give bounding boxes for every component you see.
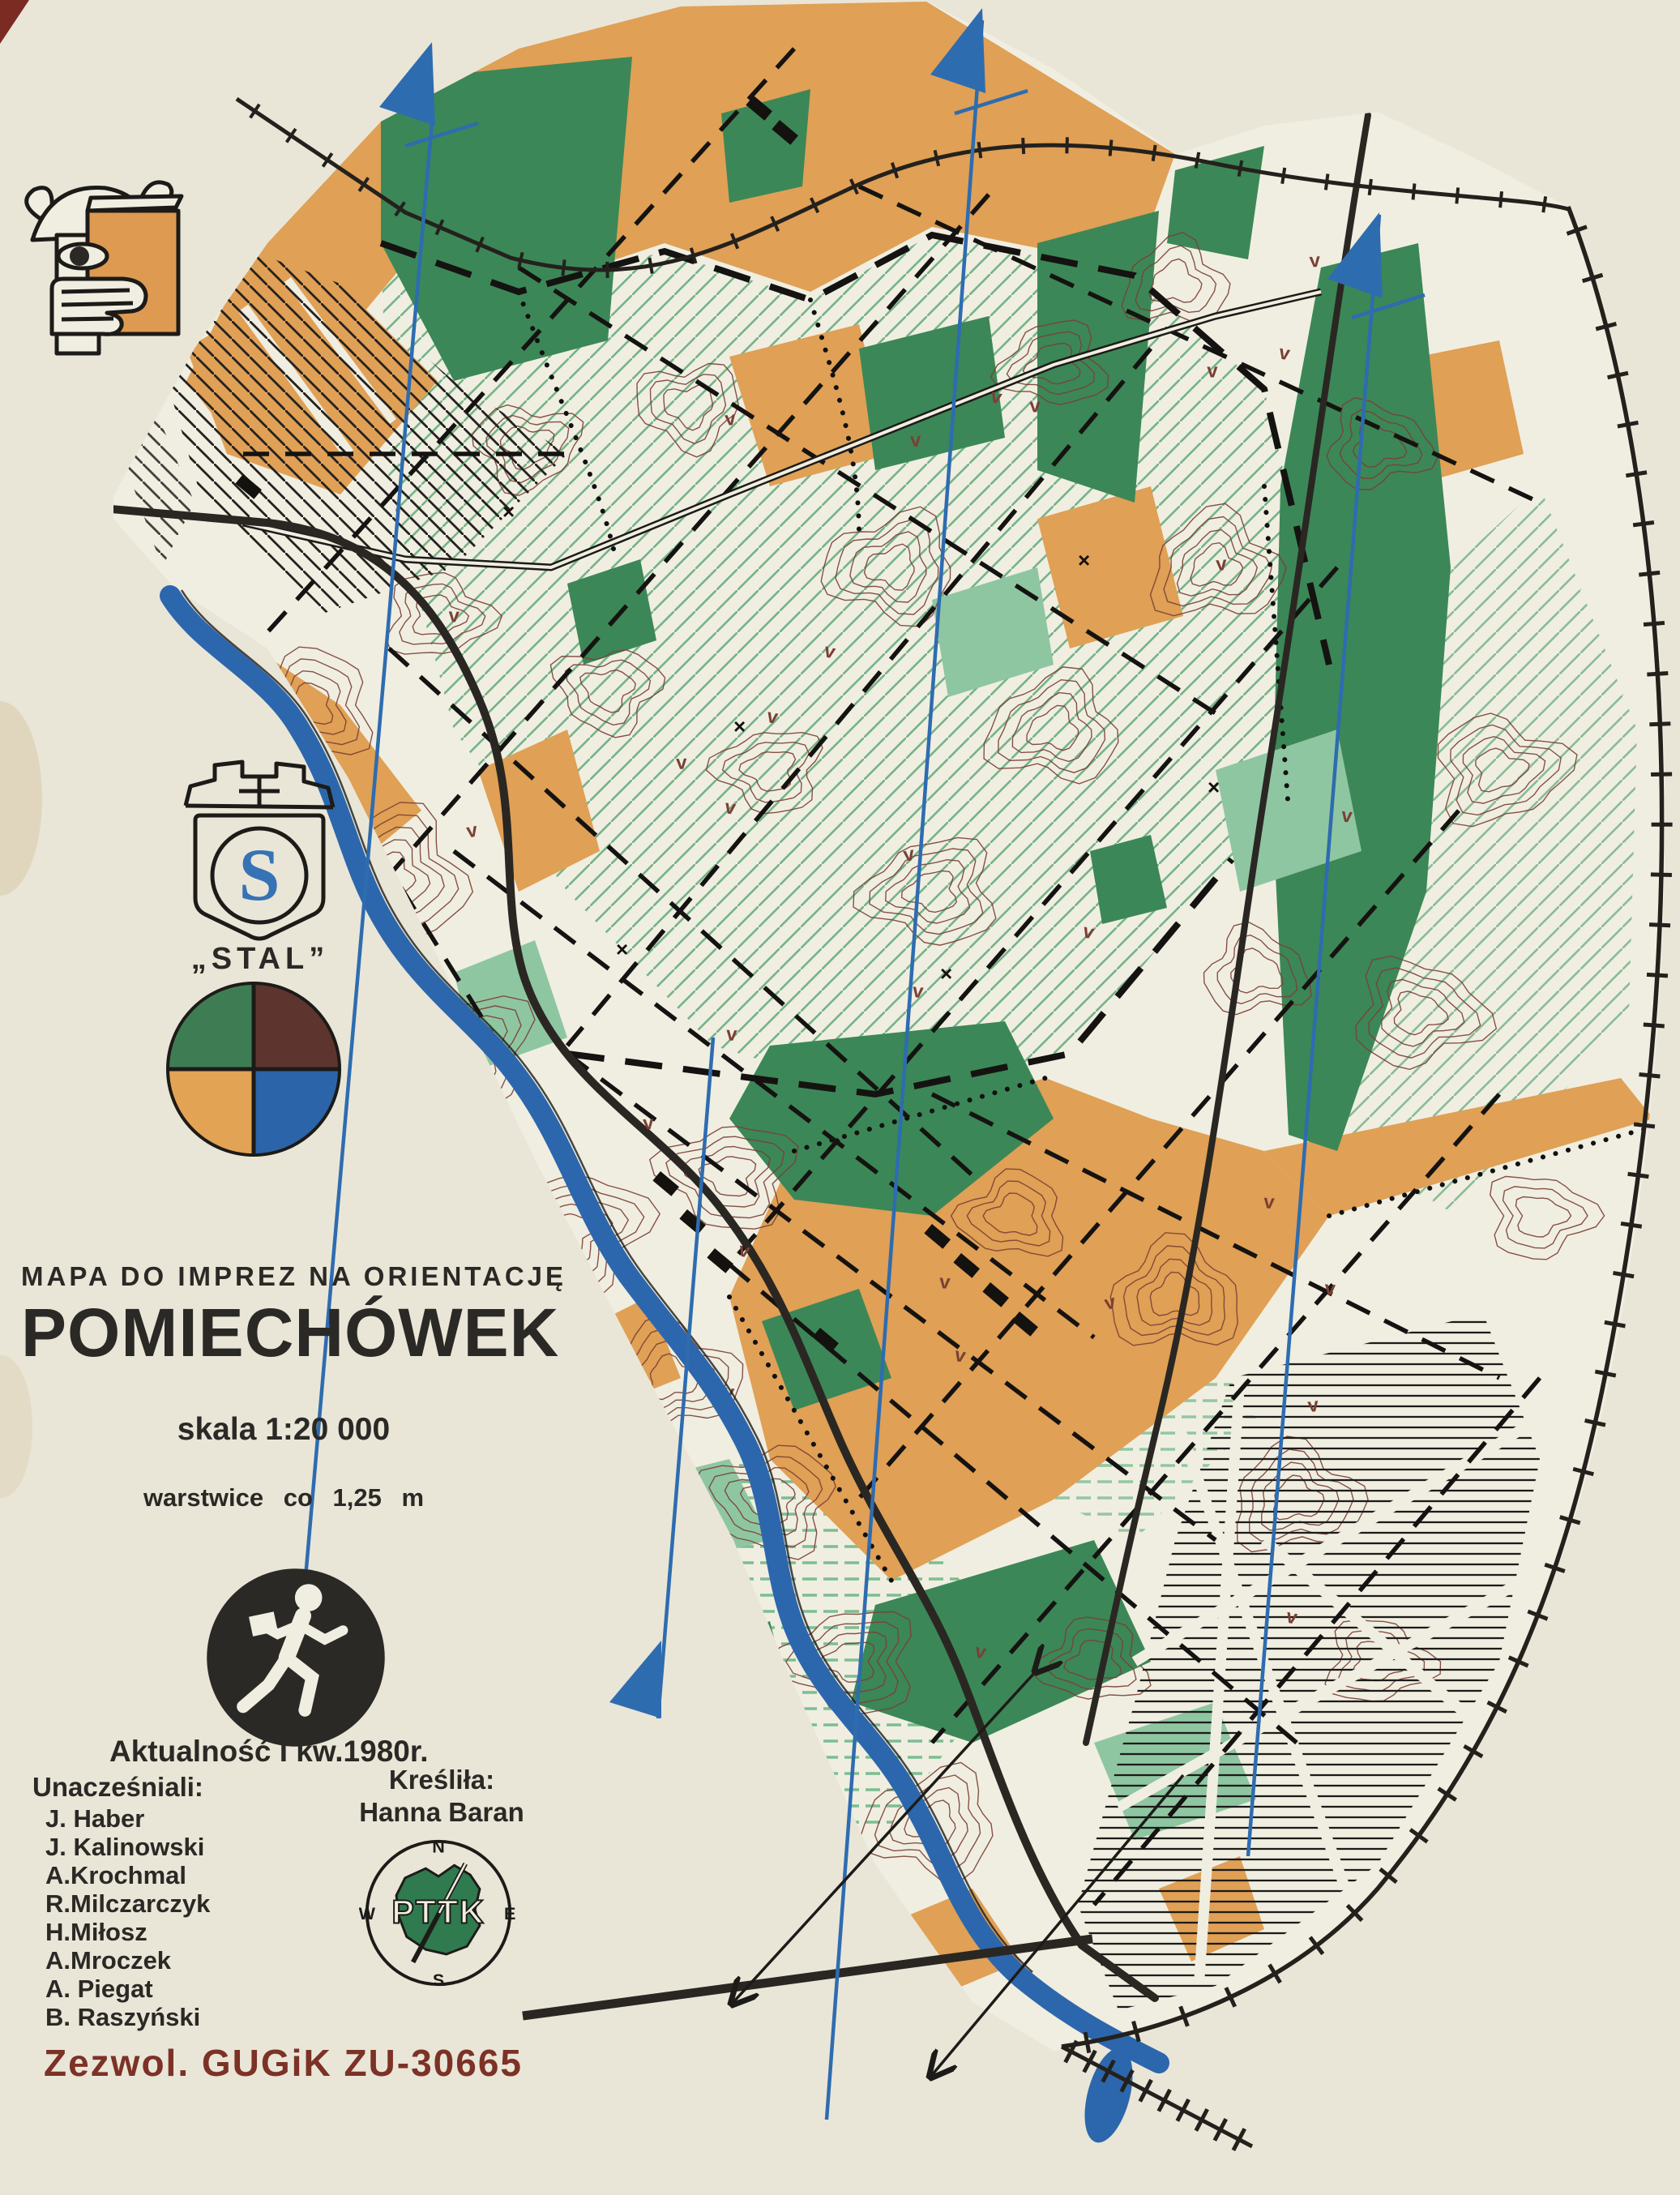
svg-text:v: v: [1215, 553, 1228, 575]
svg-text:v: v: [387, 1653, 401, 1675]
club-color-wheel: [162, 978, 345, 1161]
drawn-by-block: Kreśliła: Hanna Baran: [336, 1764, 547, 1829]
stal-club-emblem: S: [173, 755, 346, 947]
drawn-by-label: Kreśliła:: [336, 1764, 547, 1796]
orienteering-logo: [10, 160, 192, 359]
svg-text:v: v: [642, 1112, 655, 1135]
list-item: R.Milczarczyk: [45, 1889, 210, 1918]
map-card: [88, 196, 182, 211]
svg-text:v: v: [1309, 250, 1322, 272]
svg-text:v: v: [625, 1631, 636, 1653]
svg-text:×: ×: [616, 937, 628, 961]
svg-text:v: v: [448, 605, 460, 627]
svg-text:v: v: [1324, 1277, 1337, 1300]
stal-club-name: „STAL”: [159, 942, 361, 977]
svg-text:v: v: [938, 1271, 951, 1294]
svg-text:v: v: [1207, 361, 1218, 383]
svg-text:v: v: [909, 429, 921, 451]
svg-text:×: ×: [940, 961, 952, 986]
paper-stain: [0, 701, 42, 896]
list-item: A. Piegat: [45, 1975, 210, 2003]
stal-letter: S: [238, 833, 280, 916]
svg-text:v: v: [725, 1023, 737, 1046]
list-item: A.Krochmal: [45, 1861, 210, 1889]
compass-e: E: [504, 1903, 515, 1923]
svg-text:v: v: [1029, 395, 1041, 417]
list-item: J. Kalinowski: [45, 1833, 210, 1861]
svg-text:×: ×: [502, 499, 515, 524]
svg-text:×: ×: [1208, 775, 1220, 799]
series-label: MAPA DO IMPREZ NA ORIENTACJĘ: [21, 1261, 566, 1292]
updated-by-label: Unacześniali:: [32, 1772, 203, 1803]
list-item: B. Raszyński: [45, 2003, 210, 2031]
list-item: H.Miłosz: [45, 1918, 210, 1946]
corner-stain: [0, 0, 29, 44]
svg-text:v: v: [676, 751, 688, 773]
svg-text:×: ×: [733, 714, 746, 738]
compass-s: S: [433, 1970, 444, 1990]
pttk-badge: PTTK N S W E: [359, 1833, 518, 1992]
svg-text:v: v: [602, 1344, 613, 1366]
map-title: POMIECHÓWEK: [21, 1294, 559, 1372]
map-scale: skala 1:20 000: [97, 1412, 470, 1448]
list-item: A.Mroczek: [45, 1946, 210, 1975]
contour-interval-note: warstwice co 1,25 m: [81, 1483, 486, 1513]
paper-stain-2: [0, 1355, 32, 1498]
compass-n: N: [432, 1837, 445, 1857]
map-sheet: vvvvvvvvvvvvvvvvvvvvvvvvvvvvvvvvvv××××××: [0, 0, 1680, 2195]
runner-badge: [205, 1567, 387, 1748]
permit-number: Zezwol. GUGiK ZU-30665: [44, 2041, 523, 2085]
compass-w: W: [359, 1903, 376, 1923]
pttk-letters: PTTK: [391, 1893, 485, 1931]
svg-text:v: v: [1263, 1191, 1276, 1213]
svg-text:×: ×: [1078, 548, 1090, 572]
updated-by-list: J. Haber J. Kalinowski A.Krochmal R.Milc…: [45, 1804, 210, 2031]
drawn-by-name: Hanna Baran: [336, 1796, 547, 1829]
list-item: J. Haber: [45, 1804, 210, 1833]
